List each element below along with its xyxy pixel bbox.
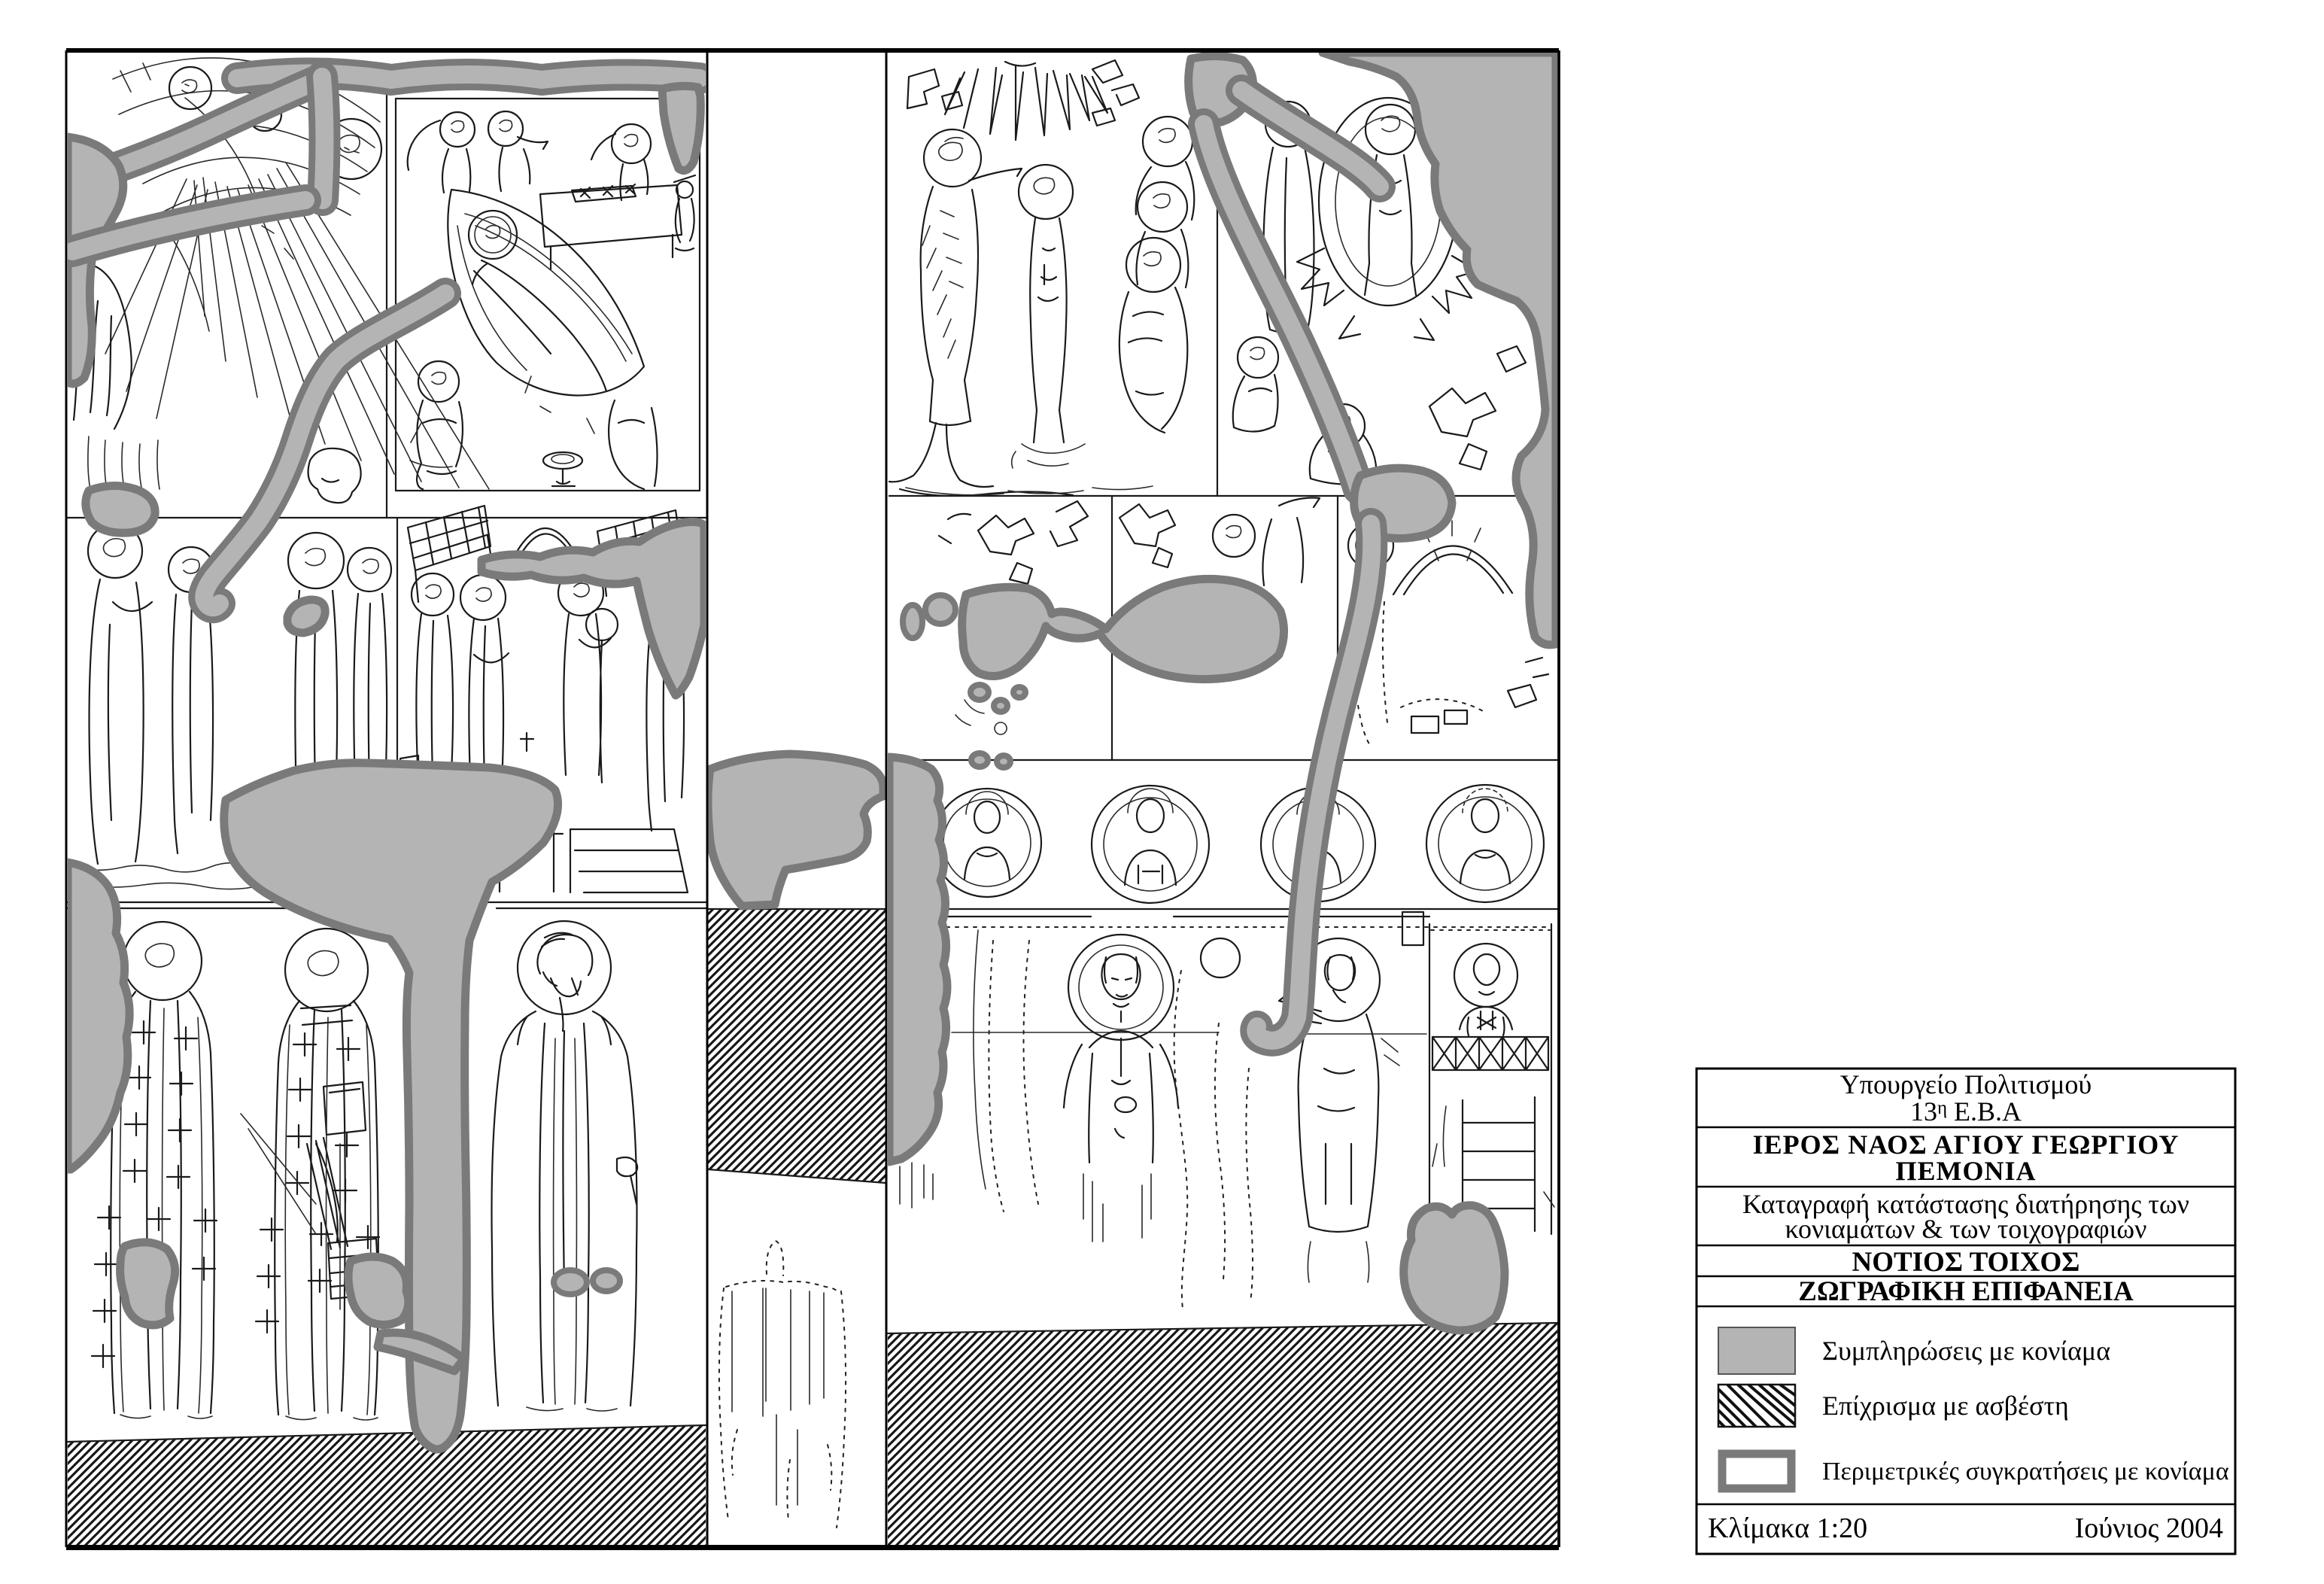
svg-text:13η Ε.Β.Α: 13η Ε.Β.Α [1910, 1096, 2022, 1126]
svg-text:Επίχρισμα με ασβέστη: Επίχρισμα με ασβέστη [1822, 1391, 2069, 1421]
svg-text:ΠΕΜΟΝΙΑ: ΠΕΜΟΝΙΑ [1896, 1156, 2037, 1186]
svg-text:ΙΕΡΟΣ ΝΑΟΣ ΑΓΙΟΥ ΓΕΩΡΓΙΟΥ: ΙΕΡΟΣ ΝΑΟΣ ΑΓΙΟΥ ΓΕΩΡΓΙΟΥ [1753, 1129, 2180, 1160]
svg-text:κονιαμάτων & των τοιχογραφιών: κονιαμάτων & των τοιχογραφιών [1785, 1214, 2147, 1244]
svg-text:Υπουργείο Πολιτισμού: Υπουργείο Πολιτισμού [1840, 1069, 2092, 1099]
svg-text:Κλίμακα 1:20: Κλίμακα 1:20 [1708, 1513, 1867, 1544]
svg-text:ΖΩΓΡΑΦΙΚΗ ΕΠΙΦΑΝΕΙΑ: ΖΩΓΡΑΦΙΚΗ ΕΠΙΦΑΝΕΙΑ [1798, 1276, 2134, 1307]
svg-text:Περιμετρικές συγκρατήσεις με κ: Περιμετρικές συγκρατήσεις με κονίαμα [1822, 1458, 2229, 1485]
svg-text:Συμπληρώσεις με κονίαμα: Συμπληρώσεις με κονίαμα [1822, 1336, 2110, 1366]
svg-text:Ιούνιος 2004: Ιούνιος 2004 [2075, 1513, 2223, 1544]
svg-text:ΝΟΤΙΟΣ ΤΟΙΧΟΣ: ΝΟΤΙΟΣ ΤΟΙΧΟΣ [1852, 1247, 2079, 1278]
